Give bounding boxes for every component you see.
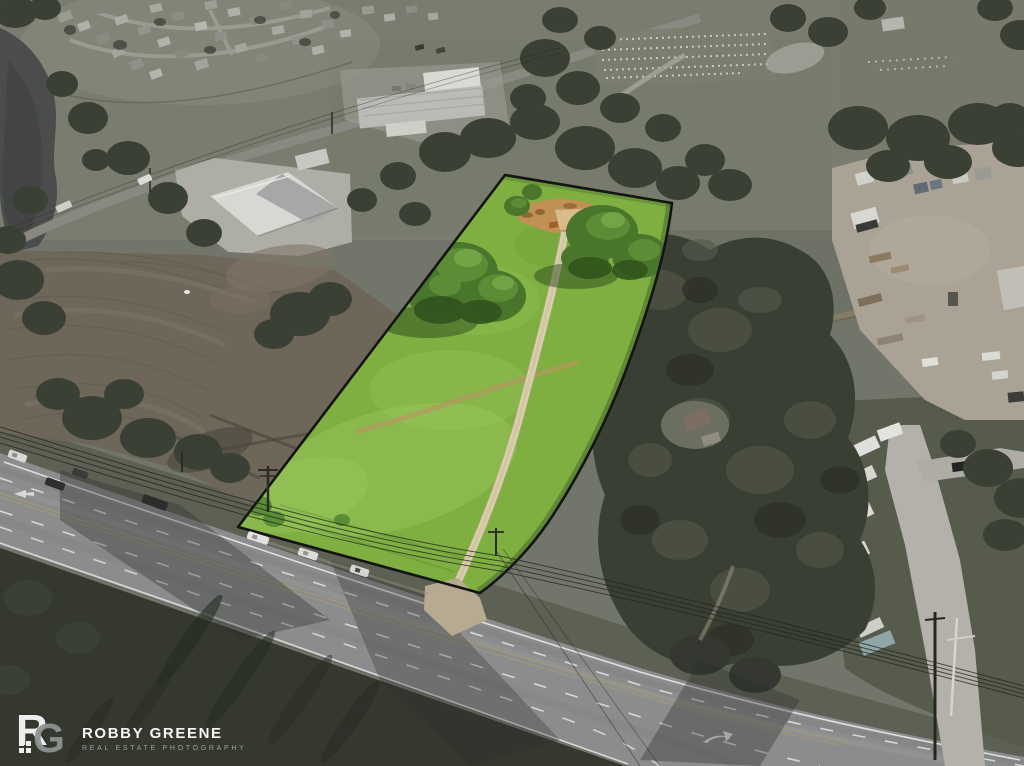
window-grid-icon bbox=[19, 741, 31, 753]
aerial-scene bbox=[0, 0, 1024, 766]
watermark: R G ROBBY GREENE REAL ESTATE PHOTOGRAPHY bbox=[16, 714, 247, 760]
aerial-photo: R G ROBBY GREENE REAL ESTATE PHOTOGRAPHY bbox=[0, 0, 1024, 766]
logo-letter-g: G bbox=[33, 715, 65, 762]
white-debris bbox=[184, 290, 190, 294]
watermark-text: ROBBY GREENE REAL ESTATE PHOTOGRAPHY bbox=[82, 725, 247, 752]
watermark-logo: R G bbox=[16, 714, 72, 760]
photographer-tagline: REAL ESTATE PHOTOGRAPHY bbox=[82, 745, 247, 752]
photographer-name: ROBBY GREENE bbox=[82, 725, 247, 742]
